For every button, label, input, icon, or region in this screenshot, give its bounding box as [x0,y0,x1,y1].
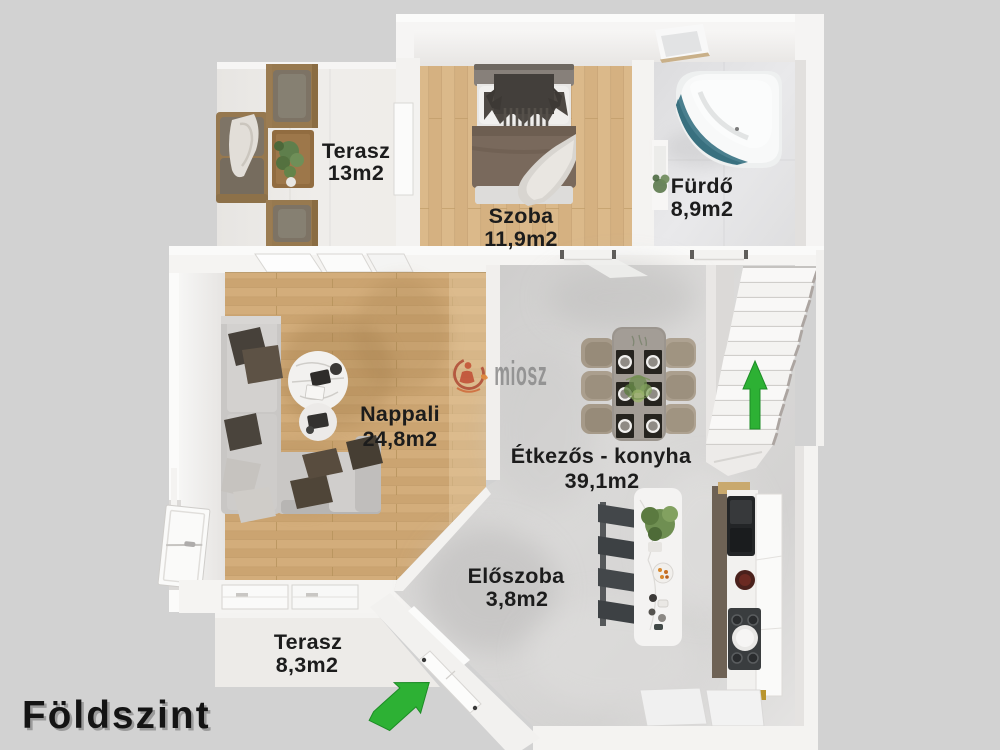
svg-text:8,9m2: 8,9m2 [671,197,733,221]
svg-text:Étkezős - konyha: Étkezős - konyha [511,443,692,468]
svg-text:11,9m2: 11,9m2 [484,227,558,251]
svg-text:8,3m2: 8,3m2 [276,653,338,677]
svg-text:Előszoba: Előszoba [468,564,566,588]
svg-text:Terasz: Terasz [274,630,342,654]
svg-text:3,8m2: 3,8m2 [486,587,548,611]
svg-text:24,8m2: 24,8m2 [363,427,438,451]
svg-text:Terasz: Terasz [322,139,390,163]
svg-text:Földszint: Földszint [22,694,211,737]
svg-text:Fürdő: Fürdő [671,174,733,198]
svg-text:39,1m2: 39,1m2 [565,469,640,493]
svg-text:13m2: 13m2 [328,161,384,185]
svg-text:Nappali: Nappali [360,402,440,426]
svg-text:miosz: miosz [494,354,547,393]
svg-text:Szoba: Szoba [489,204,555,228]
